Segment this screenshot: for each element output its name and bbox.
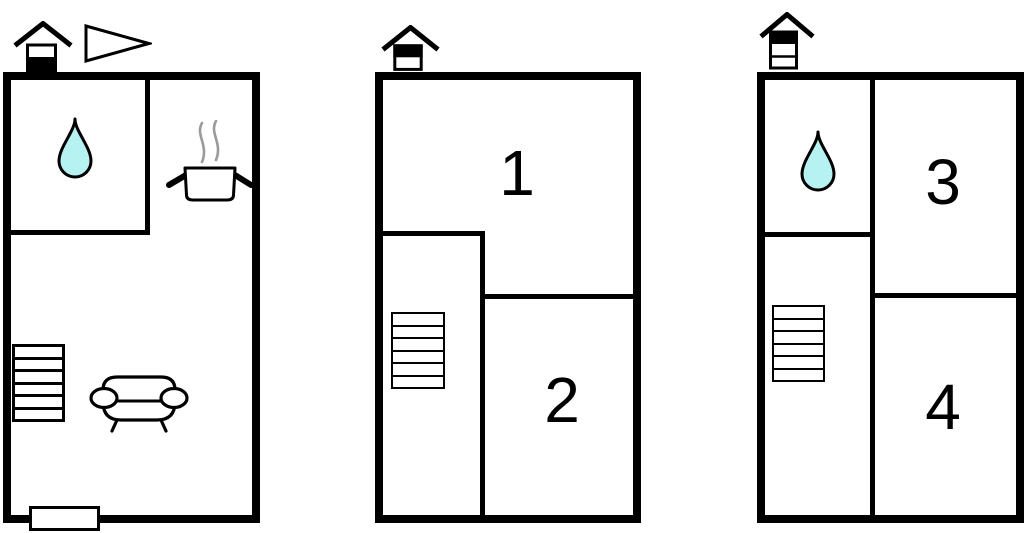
room-number-3: 3: [925, 150, 961, 214]
room-number-2: 2: [544, 368, 580, 432]
floor-plan-top: 3 4: [757, 72, 1024, 523]
house-level-icon-ground: [13, 21, 74, 73]
house-level-icon-top: [758, 12, 818, 70]
interior-wall: [145, 80, 150, 235]
stairs-icon: [12, 344, 65, 422]
floor-plan-diagram: 1 2 3 4: [0, 0, 1024, 533]
floor-plan-middle: 1 2: [375, 72, 641, 523]
interior-wall: [11, 230, 150, 235]
room-number-4: 4: [925, 375, 961, 439]
interior-wall: [875, 293, 1016, 298]
cooking-pot-icon: [164, 120, 252, 204]
interior-wall: [480, 231, 485, 515]
interior-wall: [383, 231, 485, 236]
house-level-icon-middle: [381, 25, 441, 72]
interior-wall: [485, 294, 633, 299]
room-number-1: 1: [499, 141, 535, 205]
floor-plan-ground: [3, 72, 260, 523]
pennant-icon: [84, 24, 152, 63]
interior-wall: [765, 232, 872, 237]
water-drop-icon: [798, 130, 838, 193]
entrance-icon: [29, 506, 100, 531]
stairs-icon: [772, 305, 825, 382]
water-drop-icon: [55, 117, 95, 180]
stairs-icon: [391, 312, 445, 389]
sofa-icon: [89, 374, 189, 434]
